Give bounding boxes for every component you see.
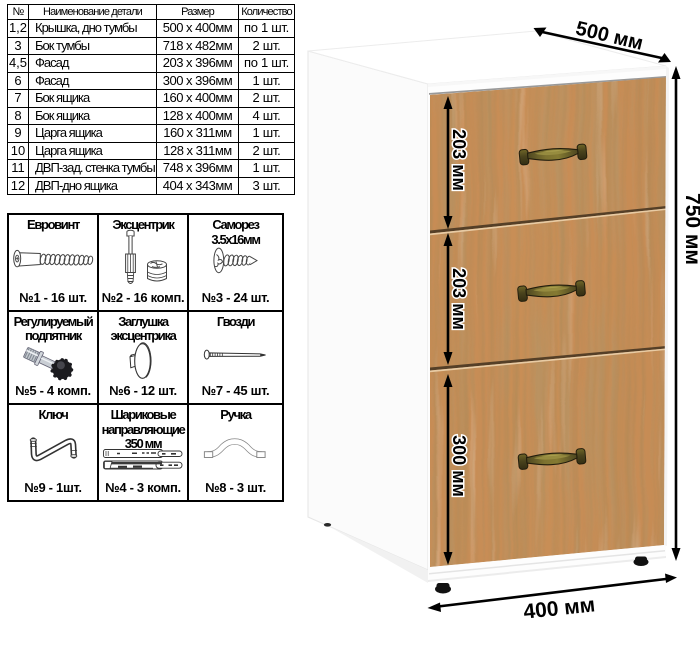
svg-text:400 мм: 400 мм <box>522 593 596 623</box>
svg-text:750 мм: 750 мм <box>681 193 700 265</box>
svg-text:300 мм: 300 мм <box>449 435 469 497</box>
svg-text:203 мм: 203 мм <box>449 129 469 191</box>
svg-text:203 мм: 203 мм <box>449 268 469 330</box>
